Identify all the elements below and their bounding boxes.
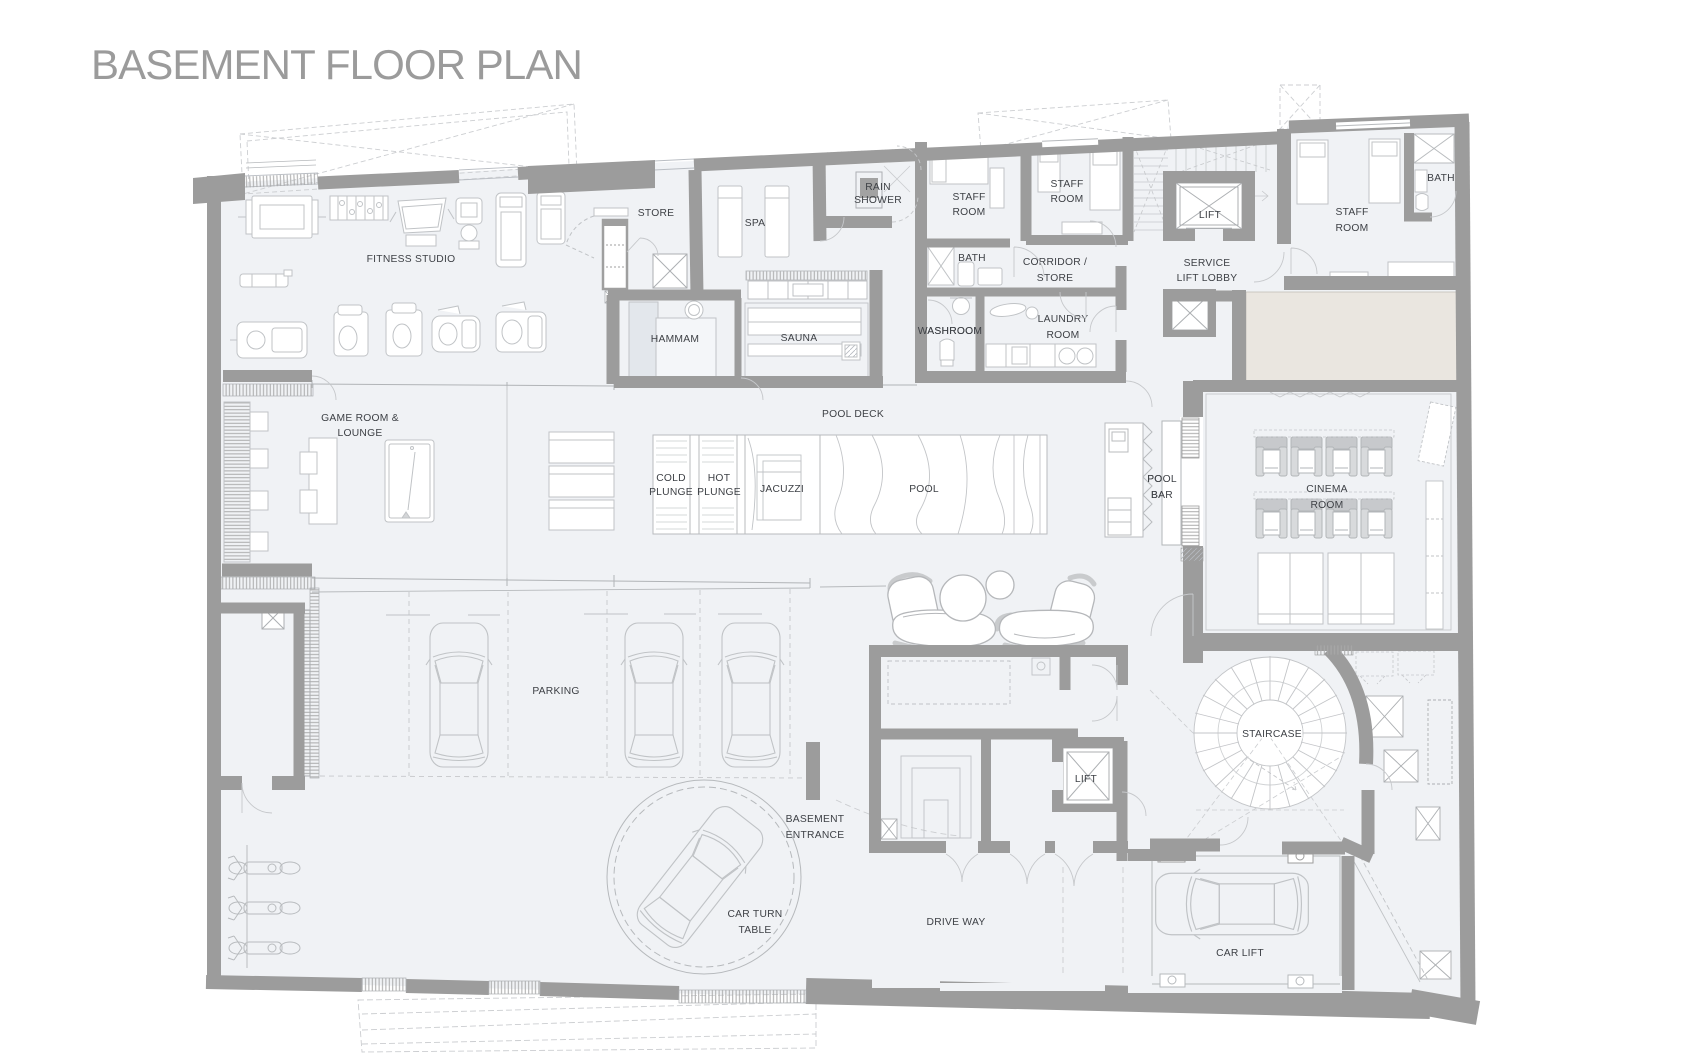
svg-text:PLUNGE: PLUNGE [649,487,693,498]
svg-text:RAIN: RAIN [865,182,891,193]
svg-text:SAUNA: SAUNA [781,333,818,344]
svg-text:LIFT: LIFT [1075,774,1098,785]
svg-text:POOL DECK: POOL DECK [822,409,884,420]
svg-text:ENTRANCE: ENTRANCE [786,830,845,841]
svg-text:CAR LIFT: CAR LIFT [1216,948,1264,959]
svg-text:BAR: BAR [1151,490,1173,501]
svg-text:SPA: SPA [745,218,766,229]
svg-text:PLUNGE: PLUNGE [697,487,741,498]
svg-text:JACUZZI: JACUZZI [760,484,804,495]
svg-text:STAFF: STAFF [1050,179,1083,190]
svg-text:BATH: BATH [958,253,986,264]
svg-text:POOL: POOL [1147,474,1177,485]
svg-text:STAIRCASE: STAIRCASE [1242,729,1302,740]
svg-text:DRIVE WAY: DRIVE WAY [927,917,986,928]
svg-text:HAMMAM: HAMMAM [651,334,699,345]
svg-text:GAME ROOM &: GAME ROOM & [321,413,399,424]
svg-text:BASEMENT FLOOR PLAN: BASEMENT FLOOR PLAN [91,41,582,88]
svg-text:BASEMENT: BASEMENT [786,814,845,825]
svg-text:STAFF: STAFF [1335,207,1368,218]
svg-text:TABLE: TABLE [738,925,771,936]
svg-text:CORRIDOR /: CORRIDOR / [1023,257,1087,268]
svg-text:SHOWER: SHOWER [854,195,902,206]
svg-text:FITNESS STUDIO: FITNESS STUDIO [367,254,456,265]
svg-text:POOL: POOL [909,484,939,495]
svg-text:LOUNGE: LOUNGE [338,428,383,439]
svg-text:HOT: HOT [708,473,731,484]
svg-text:SERVICE: SERVICE [1184,258,1231,269]
svg-text:CINEMA: CINEMA [1306,484,1348,495]
svg-text:ROOM: ROOM [1046,330,1079,341]
svg-text:LIFT LOBBY: LIFT LOBBY [1177,273,1238,284]
svg-text:BATH: BATH [1427,173,1455,184]
svg-text:CAR TURN: CAR TURN [727,909,782,920]
svg-text:STORE: STORE [638,208,675,219]
svg-text:ROOM: ROOM [1335,223,1368,234]
svg-text:STAFF: STAFF [952,192,985,203]
svg-text:PARKING: PARKING [532,686,579,697]
svg-text:STORE: STORE [1037,273,1074,284]
svg-text:ROOM: ROOM [1310,500,1343,511]
svg-text:COLD: COLD [656,473,686,484]
svg-text:LIFT: LIFT [1199,210,1222,221]
svg-text:ROOM: ROOM [1050,194,1083,205]
svg-text:ROOM: ROOM [952,207,985,218]
svg-text:WASHROOM: WASHROOM [918,326,983,337]
svg-text:LAUNDRY: LAUNDRY [1038,314,1089,325]
